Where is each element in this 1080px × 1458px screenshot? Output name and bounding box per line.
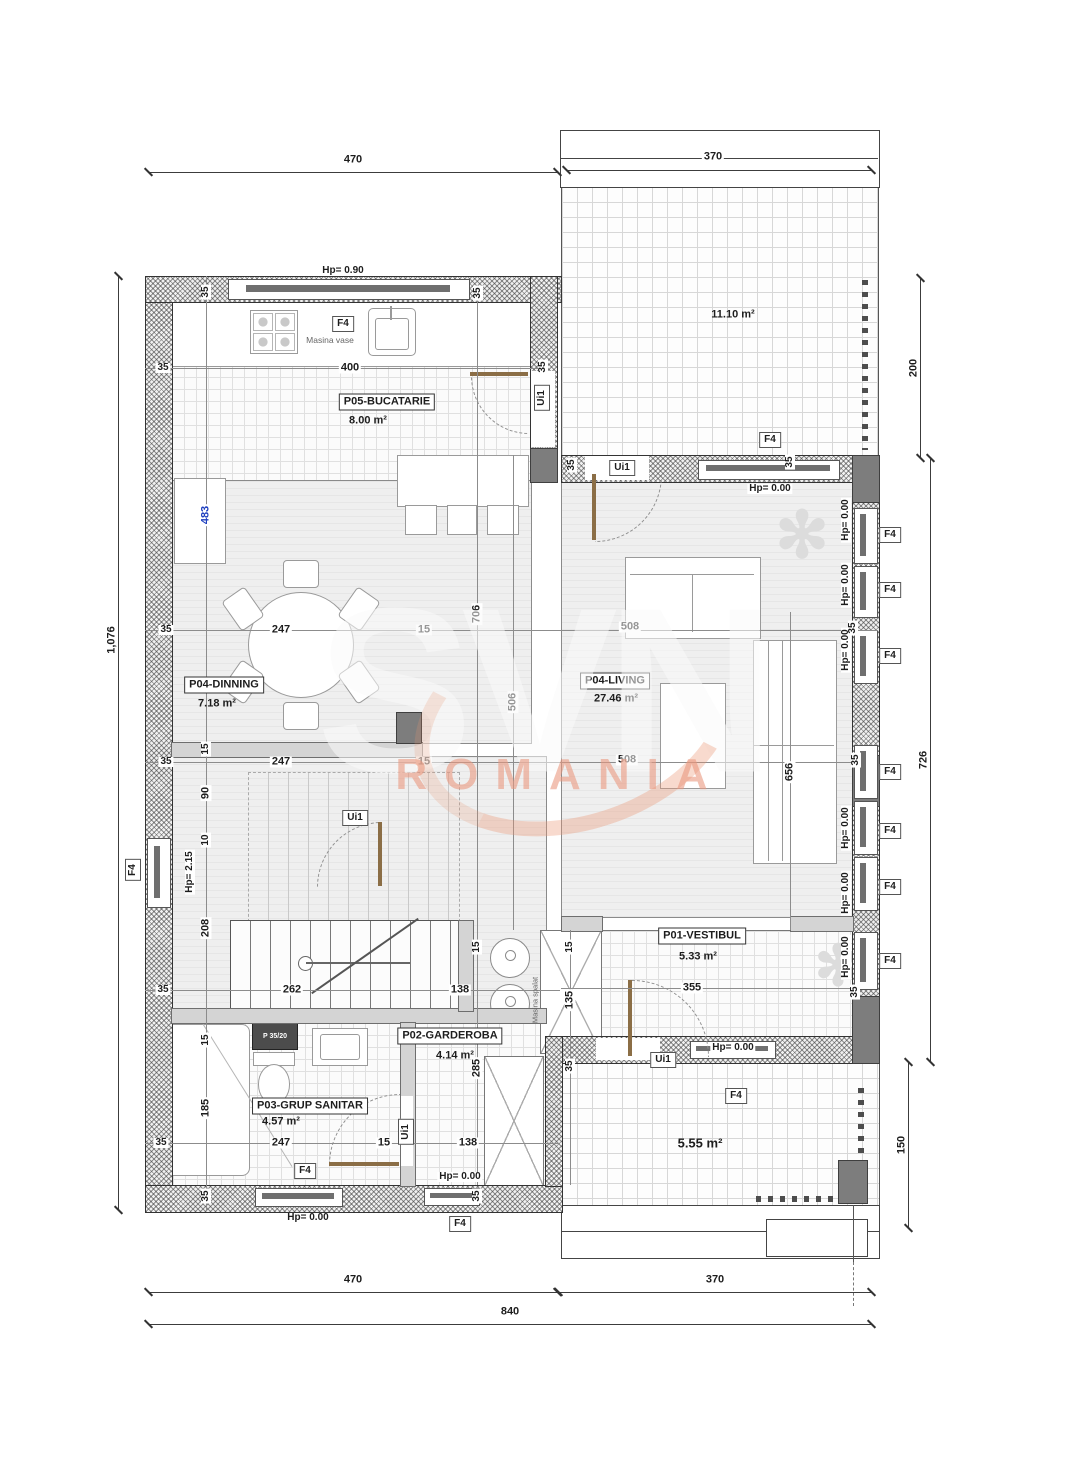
dim-line-bottom-470 — [148, 1292, 558, 1293]
dim-247-a: 247 — [270, 625, 292, 636]
door-leaf-bathroom — [329, 1162, 399, 1166]
dim-35-h: 35 — [848, 620, 858, 635]
dim-35-i: 35 — [158, 757, 173, 767]
door-leaf-vestibule — [628, 980, 632, 1056]
dim-35-n: 35 — [201, 1188, 211, 1203]
pier-east-top — [852, 455, 880, 503]
level-kitchen-window: Hp= 0.90 — [320, 266, 365, 276]
window-east-5 — [854, 801, 878, 855]
sofa-sectional — [753, 640, 837, 864]
window-east-2-bar — [860, 572, 866, 610]
level-east-2: Hp= 0.00 — [841, 562, 851, 607]
bath-sink-basin — [320, 1034, 360, 1060]
room-area-dining: 7.18 m² — [198, 699, 236, 710]
island-stool-3 — [487, 505, 519, 535]
terrace-upper-railing — [862, 280, 868, 450]
washing-machine-1 — [490, 938, 530, 978]
window-living-north-bar — [706, 465, 830, 471]
floor-plan: 470 370 1,076 200 726 150 470 370 840 — [0, 0, 1080, 1458]
window-south-2-bar — [430, 1193, 472, 1198]
shower-unit: P 35/20 — [252, 1022, 298, 1050]
dim-35-p: 35 — [472, 1188, 482, 1203]
dim-35-e: 35 — [567, 457, 577, 472]
window-tag-south: F4 — [449, 1216, 471, 1232]
dim-left-1076: 1,076 — [107, 624, 118, 656]
chain-y990 — [145, 990, 560, 991]
dining-table — [248, 592, 354, 698]
terrace-lower-post — [838, 1160, 868, 1204]
window-east-3 — [854, 630, 878, 684]
door-leaf-kitchen — [470, 372, 528, 376]
chain-y1143 — [145, 1143, 560, 1144]
burner-icon — [275, 313, 295, 331]
dim-15-e: 15 — [565, 939, 575, 954]
window-west-bar — [154, 846, 160, 898]
level-east-5: Hp= 0.00 — [841, 870, 851, 915]
wall-west — [145, 276, 173, 1212]
window-east-5-bar — [860, 807, 866, 847]
wall-vestibule-north-a — [561, 916, 603, 932]
dim-285: 285 — [472, 1057, 483, 1079]
dim-35-o: 35 — [153, 1138, 168, 1148]
room-label-living: P04-LIVING — [580, 673, 650, 690]
window-tag-east-4: F4 — [879, 764, 901, 780]
dim-15-f: 15 — [201, 1032, 211, 1047]
vestibule-floor — [561, 930, 854, 1038]
dim-top-370: 370 — [702, 152, 724, 163]
chain-y630 — [145, 630, 878, 631]
dim-35-a: 35 — [201, 284, 211, 299]
dim-35-d: 35 — [538, 359, 548, 374]
dim-483: 483 — [201, 504, 212, 526]
burner-icon — [253, 313, 273, 331]
dim-line-bottom-840 — [148, 1324, 872, 1325]
chain-x477 — [477, 300, 478, 1185]
dim-208: 208 — [201, 917, 212, 939]
dim-262: 262 — [281, 985, 303, 996]
dim-706: 706 — [472, 603, 483, 625]
window-south-1-bar — [262, 1193, 334, 1199]
washer-label: Masina spalat — [531, 977, 539, 1023]
window-kitchen-north-bar — [246, 285, 450, 292]
window-east-6-bar — [860, 863, 866, 903]
door-leaf-living — [592, 474, 596, 540]
room-label-dining: P04-DINNING — [184, 677, 264, 694]
pier-dining-wall — [396, 712, 422, 744]
dim-35-m: 35 — [850, 984, 860, 999]
level-south: Hp= 0.00 — [285, 1213, 330, 1223]
chain-y988-vestibule — [561, 988, 852, 989]
sofa-sectional-line-2 — [782, 641, 783, 861]
door-tag-kitchen: Ui1 — [534, 385, 550, 411]
sofa-sectional-line-3 — [754, 745, 834, 746]
coffee-table — [660, 683, 726, 789]
door-tag-bathroom: Ui1 — [398, 1119, 414, 1145]
dining-chair-s — [283, 702, 319, 730]
terrace-upper-floor — [561, 186, 879, 457]
dim-bottom-470: 470 — [342, 1275, 364, 1286]
dim-506: 506 — [508, 691, 519, 713]
dim-135: 135 — [565, 989, 576, 1011]
wall-bath-north — [171, 1008, 547, 1024]
terrace-lower-floor — [561, 1062, 880, 1207]
room-label-kitchen: P05-BUCATARIE — [339, 394, 435, 411]
door-tag-vestibule: Ui1 — [650, 1052, 676, 1068]
plant-icon: ✻ — [775, 503, 829, 567]
terrace-extension-dash — [853, 1262, 854, 1306]
wall-vestibule-north-b — [790, 916, 854, 932]
terrace-upper-area: 11.10 m² — [711, 310, 754, 321]
window-tag-east-5: F4 — [879, 823, 901, 839]
window-east-7 — [854, 932, 878, 990]
washer-drum-icon — [505, 950, 516, 961]
dim-line-left — [118, 276, 119, 1210]
dim-right-150: 150 — [897, 1134, 908, 1156]
chain-y762 — [145, 762, 855, 763]
room-area-kitchen: 8.00 m² — [349, 416, 387, 427]
window-east-1 — [854, 508, 878, 564]
dim-656: 656 — [785, 761, 796, 783]
dim-line-top-left — [148, 172, 558, 173]
kitchen-island — [397, 455, 529, 507]
dim-line-top-right — [566, 170, 872, 171]
window-tag-kitchen: F4 — [332, 316, 354, 332]
window-east-6 — [854, 857, 878, 911]
terrace-lower-area: 5.55 m² — [678, 1137, 723, 1150]
dim-15-a: 15 — [416, 625, 432, 636]
terrace-extension-line — [853, 1205, 854, 1262]
wall-wardrobe-east — [545, 1036, 563, 1187]
dim-138-a: 138 — [449, 985, 471, 996]
dim-508-a: 508 — [619, 622, 641, 633]
room-area-living: 27.46 m² — [594, 694, 638, 705]
dim-247-b: 247 — [270, 757, 292, 768]
dim-line-right-726 — [930, 458, 931, 1062]
room-area-vestibule: 5.33 m² — [679, 952, 717, 963]
room-label-bathroom: P03-GRUP SANITAR — [252, 1098, 368, 1115]
dim-35-l: 35 — [565, 1058, 575, 1073]
dining-chair-n — [283, 560, 319, 588]
window-tag-east-3: F4 — [879, 648, 901, 664]
dim-line-right-200 — [920, 278, 921, 458]
shower-unit-label: P 35/20 — [263, 1033, 287, 1040]
room-label-vestibule: P01-VESTIBUL — [658, 928, 746, 945]
window-tag-vestibule: F4 — [725, 1088, 747, 1104]
sofa-top-seat-line — [692, 574, 693, 632]
dim-bottom-840: 840 — [499, 1307, 521, 1318]
window-tag-east-7: F4 — [879, 953, 901, 969]
island-stool-2 — [447, 505, 477, 535]
kitchen-sink-basin — [375, 318, 409, 350]
wall-stair-east — [458, 920, 474, 1012]
burner-icon — [275, 333, 295, 351]
dishwasher-label: Masina vase — [306, 336, 354, 345]
dim-bottom-370: 370 — [704, 1275, 726, 1286]
dim-line-right-150 — [908, 1062, 909, 1228]
dim-35-g: 35 — [158, 625, 173, 635]
dim-15-g: 15 — [376, 1138, 392, 1149]
terrace-lower-railing-h — [756, 1196, 842, 1202]
dim-35-j: 35 — [851, 752, 861, 767]
level-vestibule-south: Hp= 0.00 — [710, 1043, 755, 1053]
stairs-walk-line — [306, 962, 410, 964]
stairs-lower — [230, 920, 460, 1012]
island-stool-1 — [405, 505, 437, 535]
door-leaf-stair — [378, 822, 382, 886]
dim-508-b: 508 — [616, 755, 638, 766]
level-bathroom: Hp= 0.00 — [437, 1172, 482, 1182]
dim-line-bottom-370 — [558, 1292, 872, 1293]
window-east-7-bar — [860, 938, 866, 982]
window-tag-east-6: F4 — [879, 879, 901, 895]
level-living-north: Hp= 0.00 — [747, 484, 792, 494]
dim-400: 400 — [339, 363, 361, 374]
room-area-wardrobe: 4.14 m² — [436, 1051, 474, 1062]
dim-15-b: 15 — [416, 757, 432, 768]
dim-right-726: 726 — [919, 749, 930, 771]
washer-drum-icon — [505, 996, 516, 1007]
burner-icon — [253, 333, 273, 351]
door-tag-living: Ui1 — [609, 460, 635, 476]
dim-35-k: 35 — [155, 985, 170, 995]
window-east-2 — [854, 566, 878, 618]
pier-east-bottom — [852, 996, 880, 1064]
window-tag-terrace: F4 — [759, 432, 781, 448]
window-tag-west: F4 — [125, 859, 141, 881]
sofa-sectional-line-1 — [768, 641, 769, 861]
window-east-1-bar — [860, 514, 866, 556]
dim-15-c: 15 — [201, 741, 211, 756]
stove — [250, 310, 298, 354]
kitchen-faucet — [390, 306, 392, 320]
dim-right-200: 200 — [909, 357, 920, 379]
level-stair: Hp= 2.15 — [185, 849, 195, 894]
window-tag-east-2: F4 — [879, 582, 901, 598]
dim-10: 10 — [201, 832, 211, 847]
window-east-3-bar — [860, 636, 866, 676]
dim-35-c: 35 — [155, 363, 170, 373]
room-area-bathroom: 4.57 m² — [262, 1117, 300, 1128]
window-tag-east-1: F4 — [879, 527, 901, 543]
door-tag-stair: Ui1 — [342, 810, 368, 826]
dim-185: 185 — [201, 1097, 212, 1119]
dim-247-c: 247 — [270, 1138, 292, 1149]
pier-kitchen-corner — [530, 448, 558, 483]
dim-35-b: 35 — [473, 285, 483, 300]
sofa-top — [625, 557, 761, 639]
window-tag-bath: F4 — [294, 1163, 316, 1179]
room-label-wardrobe: P02-GARDEROBA — [397, 1028, 502, 1045]
dim-355: 355 — [681, 983, 703, 994]
dim-35-f: 35 — [785, 454, 795, 469]
level-east-6: Hp= 0.00 — [841, 934, 851, 979]
dim-90: 90 — [201, 785, 212, 801]
wardrobe-cabinet — [484, 1056, 544, 1186]
level-east-1: Hp= 0.00 — [841, 497, 851, 542]
dim-138-b: 138 — [457, 1138, 479, 1149]
dim-top-470: 470 — [342, 155, 364, 166]
dim-15-d: 15 — [472, 939, 482, 954]
level-east-4: Hp= 0.00 — [841, 805, 851, 850]
